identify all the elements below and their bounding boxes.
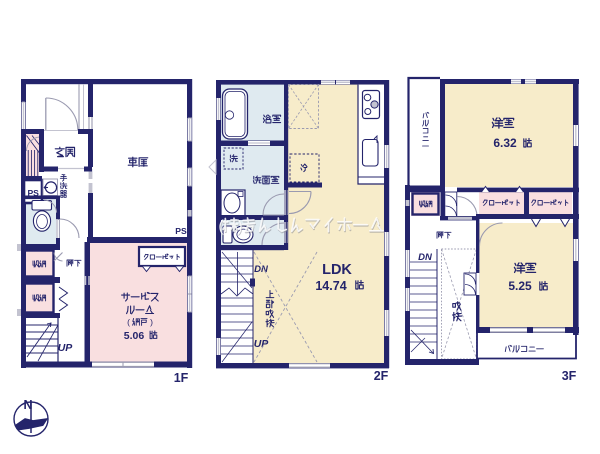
svg-text:DN: DN [254,264,269,275]
svg-text:PS: PS [175,226,187,236]
svg-text:3F: 3F [562,369,577,383]
svg-text:1F: 1F [174,371,189,385]
svg-text:UP: UP [58,342,74,354]
svg-text:(: ( [127,317,130,327]
svg-text:DN: DN [418,252,433,263]
svg-text:5.06: 5.06 [124,330,145,342]
svg-text:UP: UP [254,338,270,350]
svg-text:14.74: 14.74 [315,279,346,293]
svg-text:(: ( [218,218,224,235]
svg-text:): ) [150,317,153,327]
svg-text:6.32: 6.32 [493,136,517,150]
svg-text:5.25: 5.25 [508,279,532,293]
svg-text:2F: 2F [374,369,389,383]
svg-text:): ) [237,218,242,235]
svg-text:LDK: LDK [322,262,352,278]
